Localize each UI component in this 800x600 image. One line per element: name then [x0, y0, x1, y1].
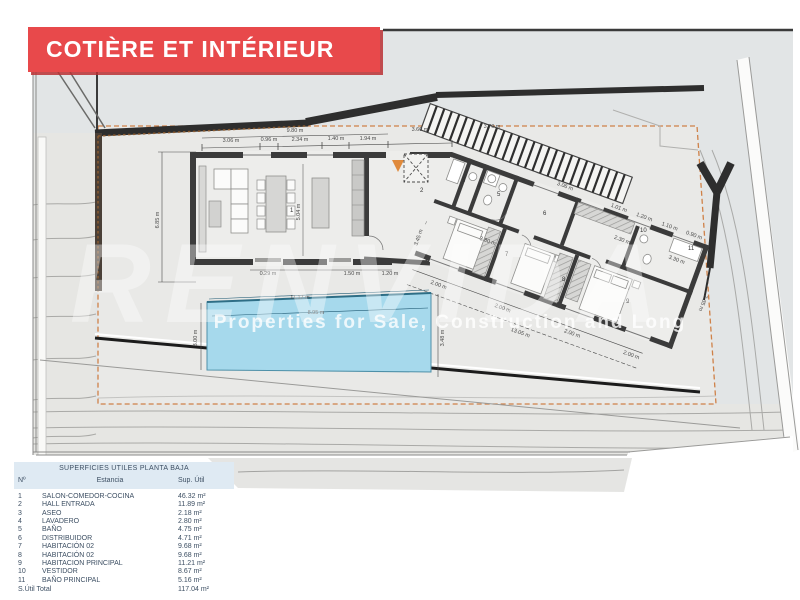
col-name: Estancia [42, 477, 178, 485]
page: 3.06 m 1.01 m 1.20 m 1.10 m 0.90 m 2.00 … [0, 0, 800, 600]
col-num: Nº [18, 477, 42, 485]
dim-s1: 3.06 m [223, 138, 240, 144]
row-num: 1 [18, 493, 42, 501]
table-row: 6DISTRIBUIDOR4.71 m² [14, 535, 234, 543]
row-area: 46.32 m² [178, 493, 230, 501]
row-num: 10 [18, 568, 42, 576]
row-num: 2 [18, 501, 42, 509]
total-label: S.Útil Total [18, 586, 178, 594]
row-area: 9.68 m² [178, 543, 230, 551]
row-name: ASEO [42, 510, 178, 518]
table-row: 11BAÑO PRINCIPAL5.16 m² [14, 577, 234, 585]
row-name: VESTIDOR [42, 568, 178, 576]
table-body: 1SALON-COMEDOR-COCINA46.32 m² 2HALL ENTR… [14, 493, 234, 595]
row-num: 3 [18, 510, 42, 518]
col-area: Sup. Útil [178, 477, 230, 485]
row-num: 11 [18, 577, 42, 585]
dim-top: 9.80 m [287, 128, 304, 134]
row-name: LAVADERO [42, 518, 178, 526]
dim-e2: 3.70 m [484, 124, 501, 130]
row-name: HALL ENTRADA [42, 501, 178, 509]
dim-e1: 3.60 m [412, 127, 429, 133]
room-11: 11 [688, 246, 695, 252]
watermark: RENVIDA Properties for Sale, Constructio… [70, 221, 686, 346]
dim-inner: 5.04 m [296, 203, 302, 220]
row-num: 8 [18, 552, 42, 560]
row-num: 9 [18, 560, 42, 568]
row-area: 4.71 m² [178, 535, 230, 543]
row-area: 11.21 m² [178, 560, 230, 568]
row-name: BAÑO PRINCIPAL [42, 577, 178, 585]
table-row: 2HALL ENTRADA11.89 m² [14, 501, 234, 509]
dim-s3: 2.34 m [292, 137, 309, 143]
dim-s4: 1.40 m [328, 136, 345, 142]
row-name: BAÑO [42, 526, 178, 534]
table-total-row: S.Útil Total117.04 m² [14, 586, 234, 594]
table-row: 8HABITACIÓN 029.68 m² [14, 552, 234, 560]
row-name: HABITACIÓN 02 [42, 543, 178, 551]
table-row: 9HABITACION PRINCIPAL11.21 m² [14, 560, 234, 568]
areas-table: SUPERFICIES UTILES PLANTA BAJA Nº Estanc… [14, 462, 234, 595]
watermark-tagline: Properties for Sale, Construction and Lo… [214, 312, 686, 333]
table-row: 10VESTIDOR8.67 m² [14, 568, 234, 576]
table-row: 1SALON-COMEDOR-COCINA46.32 m² [14, 493, 234, 501]
banner-title: COTIÈRE ET INTÉRIEUR [46, 36, 334, 63]
row-name: HABITACIÓN 02 [42, 552, 178, 560]
table-header-row: Nº Estancia Sup. Útil [14, 475, 234, 488]
row-area: 11.89 m² [178, 501, 230, 509]
total-value: 117.04 m² [178, 586, 230, 594]
row-name: SALON-COMEDOR-COCINA [42, 493, 178, 501]
table-title: SUPERFICIES UTILES PLANTA BAJA [14, 462, 234, 475]
row-name: HABITACION PRINCIPAL [42, 560, 178, 568]
row-area: 8.67 m² [178, 568, 230, 576]
row-area: 2.80 m² [178, 518, 230, 526]
dim-s2: 0.96 m [261, 137, 278, 143]
dim-s5: 1.94 m [360, 136, 377, 142]
row-num: 6 [18, 535, 42, 543]
title-banner: COTIÈRE ET INTÉRIEUR [28, 27, 380, 72]
table-row: 3ASEO2.18 m² [14, 510, 234, 518]
row-num: 4 [18, 518, 42, 526]
row-area: 4.75 m² [178, 526, 230, 534]
row-area: 2.18 m² [178, 510, 230, 518]
row-num: 7 [18, 543, 42, 551]
row-name: DISTRIBUIDOR [42, 535, 178, 543]
row-area: 9.68 m² [178, 552, 230, 560]
row-area: 5.16 m² [178, 577, 230, 585]
table-row: 5BAÑO4.75 m² [14, 526, 234, 534]
table-row: 7HABITACIÓN 029.68 m² [14, 543, 234, 551]
row-num: 5 [18, 526, 42, 534]
